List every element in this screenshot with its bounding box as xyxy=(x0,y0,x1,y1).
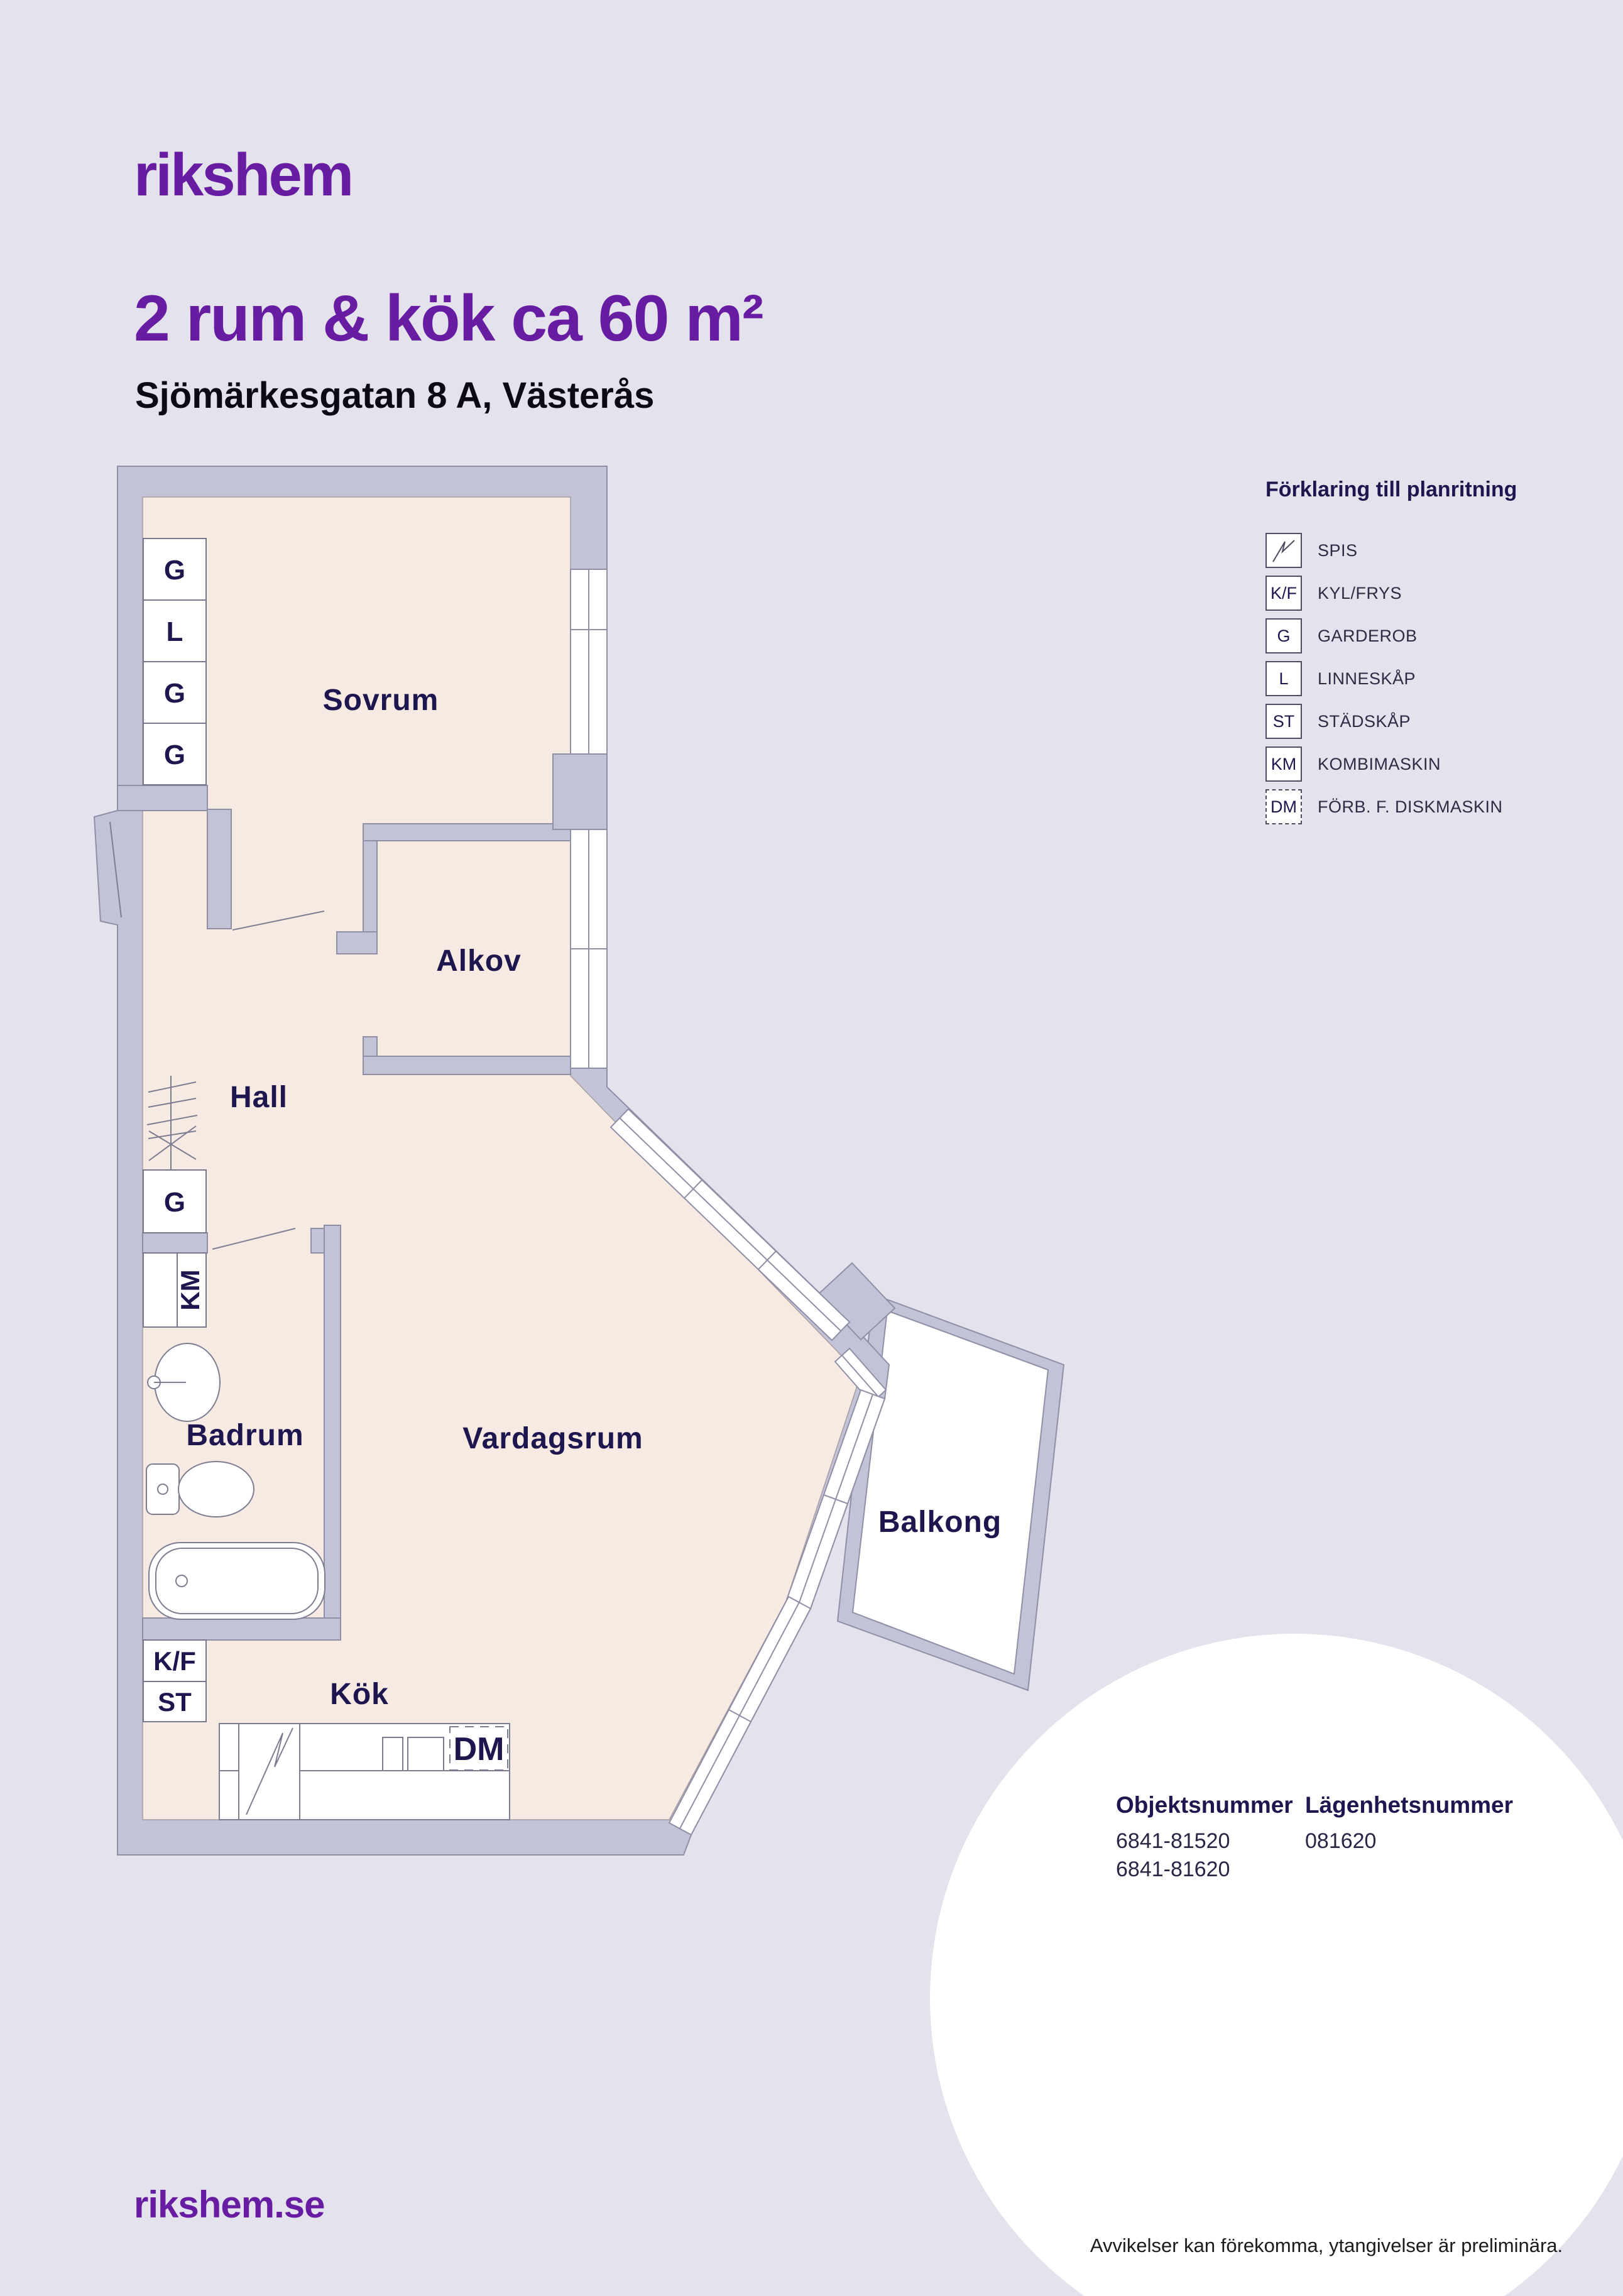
legend-box-km: KM xyxy=(1265,746,1302,782)
closet-label-g1: G xyxy=(164,555,185,586)
apartment-number-label: Lägenhetsnummer xyxy=(1305,1792,1513,1818)
closet-label-dm: DM xyxy=(454,1731,505,1768)
closet-label-kf: K/F xyxy=(153,1646,196,1676)
legend-item-label: STÄDSKÅP xyxy=(1318,712,1411,731)
legend-box-dm: DM xyxy=(1265,789,1302,824)
closet-label-km: KM xyxy=(175,1269,205,1310)
legend-item-dm: DM FÖRB. F. DISKMASKIN xyxy=(1265,789,1617,824)
page: rikshem 2 rum & kök ca 60 m² Sjömärkesga… xyxy=(0,0,1623,2296)
wall-alkov-left xyxy=(363,841,377,932)
kitchen-sink xyxy=(383,1737,403,1771)
wall-alkov-left-foot xyxy=(337,932,377,954)
wall-sovrum-hall xyxy=(207,809,231,929)
legend-item-label: FÖRB. F. DISKMASKIN xyxy=(1318,797,1503,817)
wall-badrum-top xyxy=(143,1233,207,1253)
legend-item-kf: K/F KYL/FRYS xyxy=(1265,576,1617,611)
spis-icon xyxy=(1265,533,1302,568)
object-number-block: Objektsnummer 6841-81520 6841-81620 xyxy=(1116,1792,1293,1884)
window-sovrum xyxy=(571,569,607,754)
wall-window-pier xyxy=(553,754,607,829)
website-link: rikshem.se xyxy=(134,2183,325,2226)
legend-item-l: L LINNESKÅP xyxy=(1265,661,1617,696)
room-label-alkov: Alkov xyxy=(436,944,522,978)
window-alkov xyxy=(571,829,607,1068)
wall-alkov-top xyxy=(363,824,571,841)
disclaimer: Avvikelser kan förekomma, ytangivelser ä… xyxy=(1090,2234,1563,2257)
wall-badrum-right xyxy=(324,1225,341,1640)
legend-item-label: KOMBIMASKIN xyxy=(1318,755,1441,774)
room-label-hall: Hall xyxy=(230,1081,288,1114)
room-label-balkong: Balkong xyxy=(878,1506,1002,1539)
closet-label-g2: G xyxy=(164,678,185,709)
legend-box-kf: K/F xyxy=(1265,576,1302,611)
legend-item-label: KYL/FRYS xyxy=(1318,584,1402,603)
legend-item-g: G GARDEROB xyxy=(1265,618,1617,653)
legend-box-g: G xyxy=(1265,618,1302,653)
wall-alkov-bottom xyxy=(363,1056,571,1074)
closet-label-hall-g: G xyxy=(164,1187,185,1218)
legend-item-label: LINNESKÅP xyxy=(1318,669,1416,689)
object-number-value: 6841-81620 xyxy=(1116,1856,1293,1884)
toilet-icon xyxy=(146,1462,254,1517)
legend-box-l: L xyxy=(1265,661,1302,696)
closet-label-st: ST xyxy=(158,1687,192,1717)
legend-box-st: ST xyxy=(1265,704,1302,739)
closet-label-l: L xyxy=(167,616,183,647)
object-number-value: 6841-81520 xyxy=(1116,1827,1293,1856)
apartment-number-block: Lägenhetsnummer 081620 xyxy=(1305,1792,1513,1856)
legend-item-spis: SPIS xyxy=(1265,533,1617,568)
room-label-badrum: Badrum xyxy=(186,1419,303,1452)
room-label-kok: Kök xyxy=(330,1678,389,1711)
legend-item-label: GARDEROB xyxy=(1318,626,1418,646)
legend: Förklaring till planritning SPIS K/F KYL… xyxy=(1265,478,1617,832)
legend-item-label: SPIS xyxy=(1318,541,1358,560)
legend-item-km: KM KOMBIMASKIN xyxy=(1265,746,1617,782)
room-label-sovrum: Sovrum xyxy=(323,684,439,717)
room-label-vardagsrum: Vardagsrum xyxy=(462,1422,643,1455)
legend-item-st: ST STÄDSKÅP xyxy=(1265,704,1617,739)
legend-title: Förklaring till planritning xyxy=(1265,478,1617,502)
object-number-label: Objektsnummer xyxy=(1116,1792,1293,1818)
wall-under-closets xyxy=(117,785,207,811)
apartment-number-value: 081620 xyxy=(1305,1827,1513,1856)
kitchen-sink2 xyxy=(408,1737,444,1771)
wall-badrum-bottom xyxy=(143,1618,341,1640)
closet-label-g3: G xyxy=(164,740,185,770)
wall-alkov-stub xyxy=(363,1037,377,1056)
bathtub-icon xyxy=(149,1543,325,1619)
